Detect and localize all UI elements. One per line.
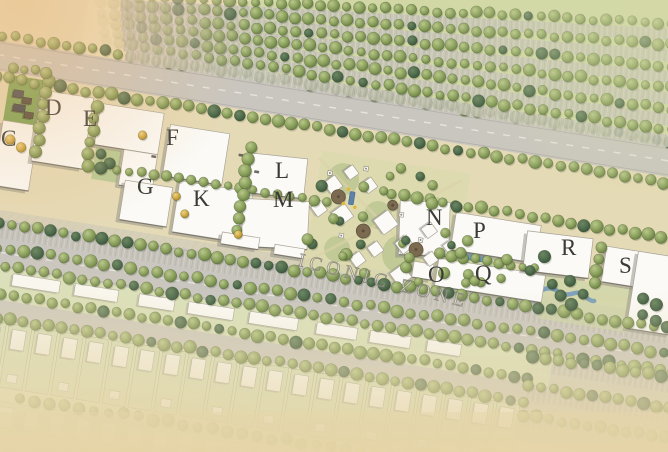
tree-icon [353, 1, 366, 14]
building-label-R: R [561, 235, 577, 260]
tree-icon [380, 2, 391, 13]
building-label-P: P [473, 218, 486, 243]
tree-icon [368, 3, 377, 12]
tree-icon [342, 2, 351, 11]
building-label-S: S [619, 253, 632, 278]
bottom-fade-deep [0, 412, 668, 452]
tree-icon [315, 0, 326, 11]
building-label-Q: Q [475, 261, 492, 286]
tree-icon [406, 4, 417, 15]
building-label-N: N [426, 205, 443, 230]
building-label-L: L [275, 158, 289, 183]
site-plan-canvas: CDEFGKLMNOPQRSICONIC ZONE [0, 0, 668, 452]
tree-icon [394, 4, 404, 14]
master-plan-rendering: CDEFGKLMNOPQRSICONIC ZONE [0, 0, 668, 452]
building-label-K: K [193, 186, 210, 211]
building-label-M: M [273, 187, 293, 212]
